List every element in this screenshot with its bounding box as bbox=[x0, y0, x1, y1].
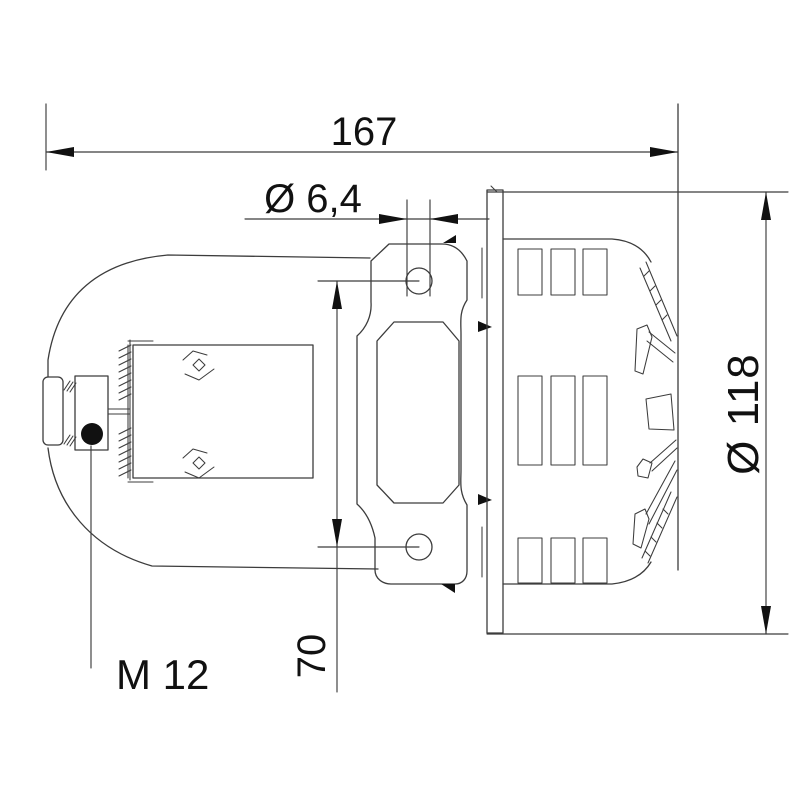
gland-end-cap bbox=[43, 377, 63, 445]
hub-opening bbox=[646, 394, 674, 430]
vent-slots bbox=[518, 249, 607, 583]
motor-block-tabs bbox=[128, 341, 153, 482]
gland-thread-marks-bottom bbox=[64, 435, 76, 446]
louver-slat-lower-1 bbox=[637, 459, 652, 478]
arrowhead-top bbox=[761, 192, 771, 220]
arrowhead-left bbox=[46, 147, 74, 157]
bracket-joint-mark-lower bbox=[478, 494, 492, 505]
vent-slot bbox=[583, 376, 607, 465]
arrowhead-top bbox=[332, 281, 342, 309]
vent-slot bbox=[551, 249, 575, 295]
bracket-outline bbox=[357, 244, 467, 584]
bracket-window-cutout bbox=[377, 322, 459, 503]
arrowhead-left bbox=[379, 214, 407, 224]
bracket-corner-tick-bottom bbox=[441, 584, 455, 593]
arrowhead-bottom bbox=[332, 519, 342, 547]
vent-slot bbox=[518, 538, 542, 583]
cable-entry-dot bbox=[81, 423, 103, 445]
technical-drawing-canvas: 167 Ø 6,4 70 Ø 118 M 12 bbox=[0, 0, 800, 800]
arrowhead-right bbox=[430, 214, 458, 224]
dimension-text-hole-diameter: Ø 6,4 bbox=[264, 177, 362, 221]
flange-plate bbox=[487, 190, 503, 633]
bracket-corner-tick-top bbox=[443, 235, 456, 243]
vent-slot bbox=[518, 249, 542, 295]
louver-fins bbox=[633, 262, 677, 563]
gland-thread-marks-top bbox=[64, 381, 76, 392]
thread-hatch-bottom bbox=[119, 428, 131, 476]
arrowhead-bottom bbox=[761, 606, 771, 634]
louver-slat-lower-2 bbox=[633, 509, 649, 548]
dimension-hole-spacing: 70 bbox=[290, 281, 419, 692]
dome-bottom-outline bbox=[48, 448, 378, 569]
louver-slat-lower-1-lines bbox=[650, 440, 677, 471]
screw-symbol-bottom bbox=[183, 449, 214, 478]
label-text-cable-gland: M 12 bbox=[116, 651, 209, 698]
dimension-text-167: 167 bbox=[331, 110, 398, 154]
motor-block bbox=[133, 345, 313, 478]
bowl-bottom-edge bbox=[503, 562, 651, 584]
flange-corner-tick bbox=[491, 186, 497, 192]
screw-symbol-top bbox=[183, 351, 214, 380]
mounting-bracket bbox=[357, 235, 492, 593]
louver-ticks-lower bbox=[645, 509, 668, 556]
motor-housing bbox=[43, 255, 378, 569]
gland-step-lines bbox=[108, 409, 130, 414]
arrowhead-right bbox=[650, 147, 678, 157]
thread-hatch-top bbox=[119, 345, 131, 400]
screw-head-diamond bbox=[193, 359, 205, 371]
rotor-housing bbox=[487, 104, 678, 633]
vent-slot bbox=[518, 376, 542, 465]
vent-slot bbox=[583, 249, 607, 295]
vent-slot bbox=[551, 376, 575, 465]
dimension-text-flange-diameter: Ø 118 bbox=[719, 353, 768, 475]
siren-dimension-drawing: 167 Ø 6,4 70 Ø 118 M 12 bbox=[0, 0, 800, 800]
bracket-joint-mark-upper bbox=[478, 321, 492, 332]
screw-chevron-upper bbox=[183, 449, 207, 458]
louver-slat-upper-lines bbox=[647, 332, 675, 362]
dome-top-outline bbox=[48, 255, 370, 377]
dimension-text-hole-spacing: 70 bbox=[290, 634, 334, 679]
vent-slot bbox=[551, 538, 575, 583]
screw-chevron-upper bbox=[183, 351, 207, 360]
dimension-overall-length: 167 bbox=[46, 104, 678, 170]
bowl-top-edge bbox=[503, 239, 651, 262]
label-cable-gland: M 12 bbox=[91, 446, 209, 698]
louver-ticks-upper bbox=[644, 271, 667, 320]
dimension-flange-diameter: Ø 118 bbox=[487, 192, 788, 634]
dimension-hole-diameter: Ø 6,4 bbox=[245, 177, 489, 296]
vent-slot bbox=[583, 538, 607, 583]
screw-head-diamond bbox=[193, 457, 205, 469]
